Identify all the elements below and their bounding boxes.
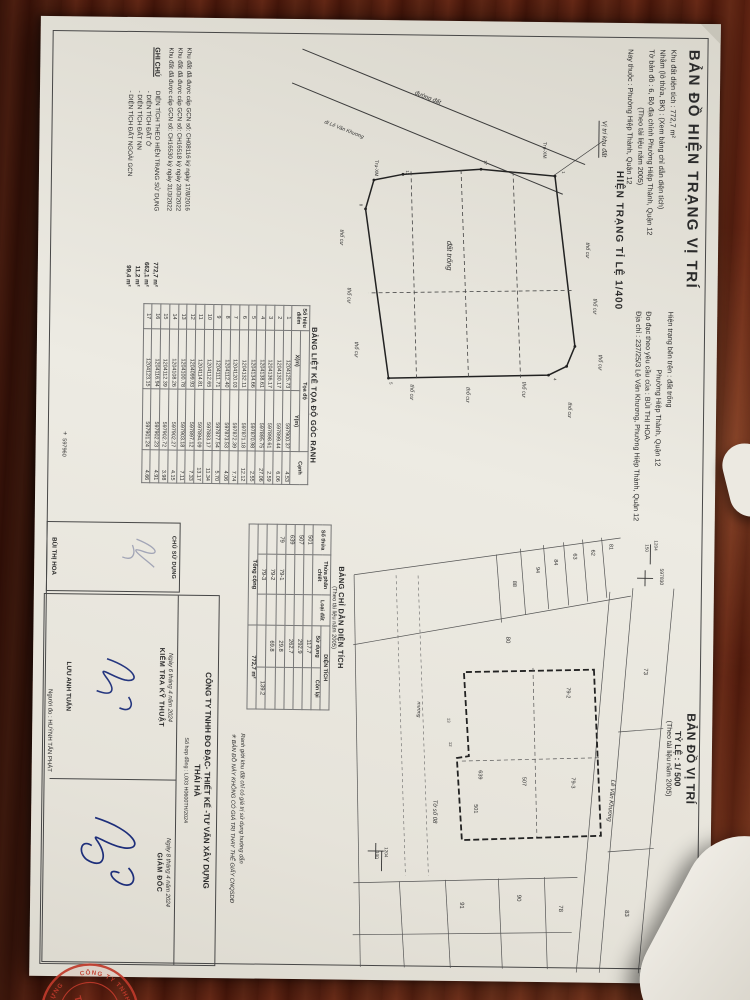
owner-pencil-scribble [110,529,171,586]
photo-scene: BẢN ĐỒ HIỆN TRẠNG VỊ TRÍ BẢN ĐỒ VỊ TRÍ T… [0,0,750,1000]
director-cell: Ngày 8 tháng 4 năm 2024 GIÁM ĐỐC [47,779,175,965]
area-summary: DIỆN TÍCH THEO HIỆN TRẠNG SỬ DỤNG 772,7 … [123,90,161,286]
parcel-label: 83 [623,910,629,917]
table-cell: 597872.39 [229,390,238,450]
technical-check-name: LƯU ANH TUẤN [64,594,73,778]
vertex-number: 8 [359,204,364,206]
parcel-label: 91 [458,902,464,909]
table-cell [274,667,284,709]
table-cell: 13.17 [194,450,203,483]
area-total-label: Tổng cộng [248,524,258,625]
table-cell: 4 [257,305,266,330]
table-cell: 4.06 [220,450,229,483]
survey-document: BẢN ĐỒ HIỆN TRẠNG VỊ TRÍ BẢN ĐỒ VỊ TRÍ T… [29,16,721,984]
table-cell: 1204112.39 [160,329,169,389]
table-cell [293,667,303,709]
road-direction-label: đi Lê Văn Khương [323,119,364,140]
vertex-number: 13 [446,718,451,723]
parcel-label: 79-2 [565,687,571,698]
table-cell: 597870.98 [247,390,256,450]
table-cell: 2.55 [246,451,255,484]
table-cell: 1204099.93 [186,329,195,389]
area-label: - DIỆN TÍCH ĐẤT NN [133,91,143,150]
table-cell: 69.8 [266,625,276,667]
area-table: Số thửa Thửa phân chiết Loại đất DIỆN TÍ… [246,523,331,710]
parcel-label: 63 [571,553,577,559]
table-cell: 2.59 [264,451,273,484]
table-cell: 3.98 [159,450,168,483]
map1-labels: thổ cưthổ cưthổ cưthổ cưthổ cưthổ cưthổ … [279,45,614,499]
adjacent-land-label: thổ cư [520,382,526,397]
table-cell: 507 [295,525,305,556]
company-box: CÔNG TY TNHH ĐO ĐẠC- THIẾT KẾ -TƯ VẤN XÂ… [39,593,220,966]
director-role: GIÁM ĐỐC [154,780,163,964]
parcel-label: 90 [515,895,521,902]
map-label: thổ cư [597,355,603,370]
map-label: thổ cư [464,387,470,402]
owner-box-title: CHỦ SỬ DỤNG [170,524,177,592]
grid-northing-label: 1204 [384,847,389,857]
parcel-label: 501 [472,804,478,813]
sheet-label: Tờ số 08 [431,800,437,824]
ghi-chu-title: GHI CHÚ [125,47,161,77]
boundary-post-label: Trụ-XM [373,160,379,177]
company-header: CÔNG TY TNHH ĐO ĐẠC- THIẾT KẾ -TƯ VẤN XÂ… [173,596,219,965]
map-label: thổ cư [566,402,572,417]
table-cell [284,667,294,709]
grid-northing-label: 1204 [653,540,658,550]
table-cell: 4.15 [168,450,177,483]
table-cell: 1204111.71 [213,329,222,389]
table-cell: 10 [205,304,214,329]
table-cell: 9 [213,305,222,330]
table-cell: 597877.54 [212,390,221,450]
table-cell: 597894.09 [194,390,203,450]
table-cell [294,555,304,595]
map2-labels: 816263849488738379-279-35076395018078909… [337,515,693,974]
table-cell: 1204136.17 [265,330,274,390]
col-con-lai: Còn lại [311,668,320,710]
map-label: thổ cư [591,299,597,314]
table-cell: 1204114.81 [195,329,204,389]
table-cell: 1204112.40 [221,330,230,390]
owner-name: BÙI THỊ HOA [50,522,58,590]
table-cell: 1204108.26 [169,329,178,389]
table-cell: 597895.75 [256,390,265,450]
map1-pointer-label: Vị trí khu đất [598,121,607,158]
road-label: đường đất [414,90,442,106]
vertex-number: 5 [388,382,393,384]
col-loai-dat: Loại đất [312,595,330,626]
table-cell: 7.11 [176,450,185,483]
table-cell: 597902.23 [151,389,160,449]
col-phan-chiet: Thửa phân chiết [313,555,331,595]
table-cell: 1204132.11 [239,330,248,390]
table-cell: 29.8 [275,625,285,667]
table-cell: 7 [231,305,240,330]
parcel-label: 84 [552,559,558,565]
technical-check-role: KIỂM TRA KỸ THUẬT [157,595,166,779]
technical-check-signature [89,653,145,724]
parcel-label: 79-3 [569,777,575,788]
director-signature [76,807,147,903]
table-cell [267,524,277,555]
notes-block: Khu đất đã được cấp GCN số: CH08116 ký n… [122,47,192,310]
map-disclaimer: Ranh giới khu đất chỉ có giá trị sử dụng… [226,733,247,903]
vertex-number: 12 [448,742,453,747]
table-cell: 597898.61 [264,390,273,450]
canal-label: mương [415,702,421,718]
table-cell: 597871.18 [238,390,247,450]
table-cell: 5.70 [211,450,220,483]
table-cell: 79-2 [267,555,277,595]
table-cell: 4.66 [141,449,150,482]
parcel-label: 78 [557,905,563,912]
table-cell: 1204120.03 [230,330,239,390]
grid-coordinate-label: +597960 [61,431,68,457]
table-cell: 4.91 [150,449,159,482]
table-cell: 3 [266,305,275,330]
table-cell: 1204100.78 [178,329,187,389]
table-cell [285,595,295,626]
table-cell [276,595,286,626]
table-cell: 7.33 [185,450,194,483]
area-total-value: 772,7 m² [247,625,257,709]
area-value: 772,7 m² [150,262,159,287]
table-cell: 79-1 [276,555,286,595]
parcel-label: 507 [521,777,527,786]
vertex-number: 17 [483,160,488,165]
grid-easting-label: 597830 [658,568,664,585]
technical-check-cell: Ngày 6 tháng 4 năm 2024 KIỂM TRA KỸ THUẬ… [50,594,178,781]
table-cell: 1204116.94 [151,329,160,389]
table-cell: 597901.24 [142,389,151,449]
table-cell [258,524,268,555]
grid-cross-icon: + [61,431,68,435]
vertex-number: 1 [561,171,566,173]
col-su-dung: Sử dụng [312,625,321,667]
map-label: thổ cư [345,288,351,303]
parcel-label: 88 [511,581,517,587]
parcel-label: 81 [607,544,613,550]
area-value: 99,4 m² [123,265,132,286]
table-cell: 597902.27 [168,389,177,449]
table-cell: 597883.17 [203,390,212,450]
director-date: Ngày 8 tháng 4 năm 2024 [163,780,171,964]
table-cell: 597873.53 [221,390,230,450]
white-cable-tip [718,439,750,521]
table-cell [303,595,313,626]
parcel-label: 80 [504,637,510,644]
table-cell: 11 [196,304,205,329]
table-cell: 11.34 [203,450,212,483]
table-cell: 292.9 [293,625,303,667]
table-cell: 639 [286,524,296,555]
parcel-label: 73 [642,668,648,675]
table-cell [302,667,312,709]
table-cell: 597897.12 [186,390,195,450]
table-cell: 8 [222,305,231,330]
table-cell: 79-3 [257,555,267,595]
table-cell: 27.06 [255,451,264,484]
area-label: DIỆN TÍCH THEO HIỆN TRẠNG SỬ DỤNG [151,91,161,212]
boundary-post-label: Trụ-XM [541,142,547,159]
area-table-block: BẢNG CHỈ DẪN DIỆN TÍCH (Theo tài liệu nă… [246,523,346,710]
parcel-label: 639 [477,770,483,779]
table-cell: 597903.18 [177,389,186,449]
table-cell: 1204138.61 [256,330,265,390]
col-dien-tich: DIỆN TÍCH [320,626,330,710]
area-value: 662,1 m² [141,262,150,287]
vertex-number: 4 [552,378,557,380]
parcel-label: 62 [589,550,595,556]
table-cell [285,555,295,595]
grid-northing-label: 150 [644,544,649,552]
document-title: BẢN ĐỒ HIỆN TRẠNG VỊ TRÍ [683,50,703,290]
table-cell: 12.12 [238,451,247,484]
table-cell: 139.2 [256,667,266,709]
table-cell: 6 [240,305,249,330]
technical-check-date: Ngày 6 tháng 4 năm 2024 [166,595,174,779]
table-cell [257,594,267,625]
table-cell: 262.7 [284,625,294,667]
table-cell: 597902.72 [159,389,168,449]
table-cell [294,595,304,626]
table-cell [304,555,314,595]
map-label: thổ cư [338,230,344,245]
area-label: - DIỆN TÍCH ĐẤT Ở [142,91,152,147]
table-cell: 501 [304,525,314,556]
table-cell [265,667,275,709]
company-red-stamp: CÔNG TY TNHH ĐO ĐẠC - THIẾT KẾ - TƯ VẤN … [23,946,157,1000]
surveyor-name: Người đo : HUỲNH TẤN PHÁT [46,689,53,772]
table-cell [257,625,267,667]
col-so-thua: Số thửa [313,525,331,556]
map1-title: HIỆN TRẠNG TỈ LỆ 1/400 [612,171,625,310]
table-cell [266,594,276,625]
header-left-column: Khu đất diện tích : 772,7 m² Nhằm (lô th… [621,49,678,302]
street-label: Lê Văn Khương [605,779,615,822]
parcel-label: 94 [534,567,540,573]
table-cell: 1204134.66 [248,330,257,390]
grid-northing-label: 100 [375,851,380,859]
table-cell: 5 [248,305,257,330]
table-cell: 1204123.15 [143,329,152,389]
area-value: 11,2 m² [132,266,141,287]
area-label: - DIỆN TÍCH ĐẤT NGOÀI GCN [124,90,134,176]
vertex-number: 13 [405,170,410,175]
table-cell: 79 [276,524,286,555]
table-cell: 1204112.65 [204,329,213,389]
map-label: thổ cư [353,342,359,357]
table-cell: 7.74 [229,450,238,483]
map-label: thổ cư [408,384,414,399]
map-label: thổ cư [584,243,590,258]
owner-signature-box: CHỦ SỬ DỤNG BÙI THỊ HOA [46,521,181,593]
grid-easting-bottom: 597960 [61,438,67,456]
subject-land-label: đất trống [445,241,454,271]
table-cell: 117.7 [303,625,313,667]
